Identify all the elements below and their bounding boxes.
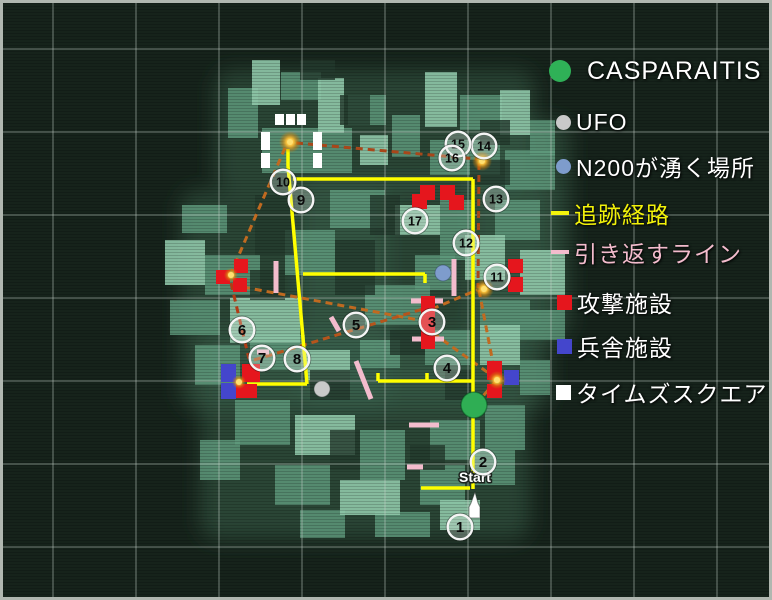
waypoint-14: 14 xyxy=(471,133,498,160)
waypoint-7: 7 xyxy=(249,345,276,372)
waypoint-number: 6 xyxy=(238,322,246,339)
waypoint-number: 4 xyxy=(443,360,452,377)
casparaitis-marker xyxy=(461,392,487,418)
waypoint-number: 9 xyxy=(297,192,305,209)
waypoint-number: 14 xyxy=(477,140,491,154)
glow-core xyxy=(236,379,242,385)
barracks-facility-marker xyxy=(504,370,519,385)
times-square-marker xyxy=(313,153,322,168)
attack-facility-marker xyxy=(508,259,523,273)
waypoint-number: 13 xyxy=(489,193,503,207)
game-map-canvas: Start1234567891011121314151617 xyxy=(0,0,772,600)
waypoint-number: 8 xyxy=(293,351,301,368)
waypoint-1: 1 xyxy=(447,514,474,541)
times-square-marker xyxy=(297,114,306,125)
waypoint-2: 2 xyxy=(470,449,497,476)
waypoint-number: 11 xyxy=(490,271,503,285)
waypoint-4: 4 xyxy=(434,355,461,382)
glow-core xyxy=(481,286,487,292)
times-square-marker xyxy=(313,132,322,150)
times-square-marker xyxy=(261,153,270,168)
waypoint-number: 5 xyxy=(352,317,360,334)
waypoint-17: 17 xyxy=(402,208,429,235)
attack-facility-marker xyxy=(449,195,464,210)
n200-spawn-marker xyxy=(435,265,451,281)
waypoint-16: 16 xyxy=(439,145,466,172)
waypoint-5: 5 xyxy=(343,312,370,339)
waypoint-12: 12 xyxy=(453,230,480,257)
waypoint-number: 16 xyxy=(445,152,459,166)
waypoint-3: 3 xyxy=(419,309,446,336)
times-square-marker xyxy=(275,114,284,125)
times-square-marker xyxy=(261,132,270,150)
times-square-marker xyxy=(286,114,295,125)
waypoint-8: 8 xyxy=(284,346,311,373)
scanline-overlay xyxy=(0,0,772,600)
ufo-marker xyxy=(314,381,330,397)
waypoint-6: 6 xyxy=(229,317,256,344)
waypoint-13: 13 xyxy=(483,186,510,213)
waypoint-number: 1 xyxy=(456,519,464,536)
glow-core xyxy=(494,377,500,383)
waypoint-10: 10 xyxy=(270,169,297,196)
waypoint-number: 17 xyxy=(408,215,422,229)
waypoint-number: 10 xyxy=(276,176,290,190)
waypoint-number: 12 xyxy=(459,237,473,251)
game-map-window: Start1234567891011121314151617 CASPARAIT… xyxy=(0,0,772,600)
glow-core xyxy=(228,272,234,278)
waypoint-number: 2 xyxy=(479,454,487,471)
waypoint-11: 11 xyxy=(484,264,511,291)
waypoint-number: 7 xyxy=(258,350,266,367)
glow-core xyxy=(287,139,293,145)
attack-facility-marker xyxy=(412,194,427,209)
waypoint-number: 3 xyxy=(428,314,436,331)
